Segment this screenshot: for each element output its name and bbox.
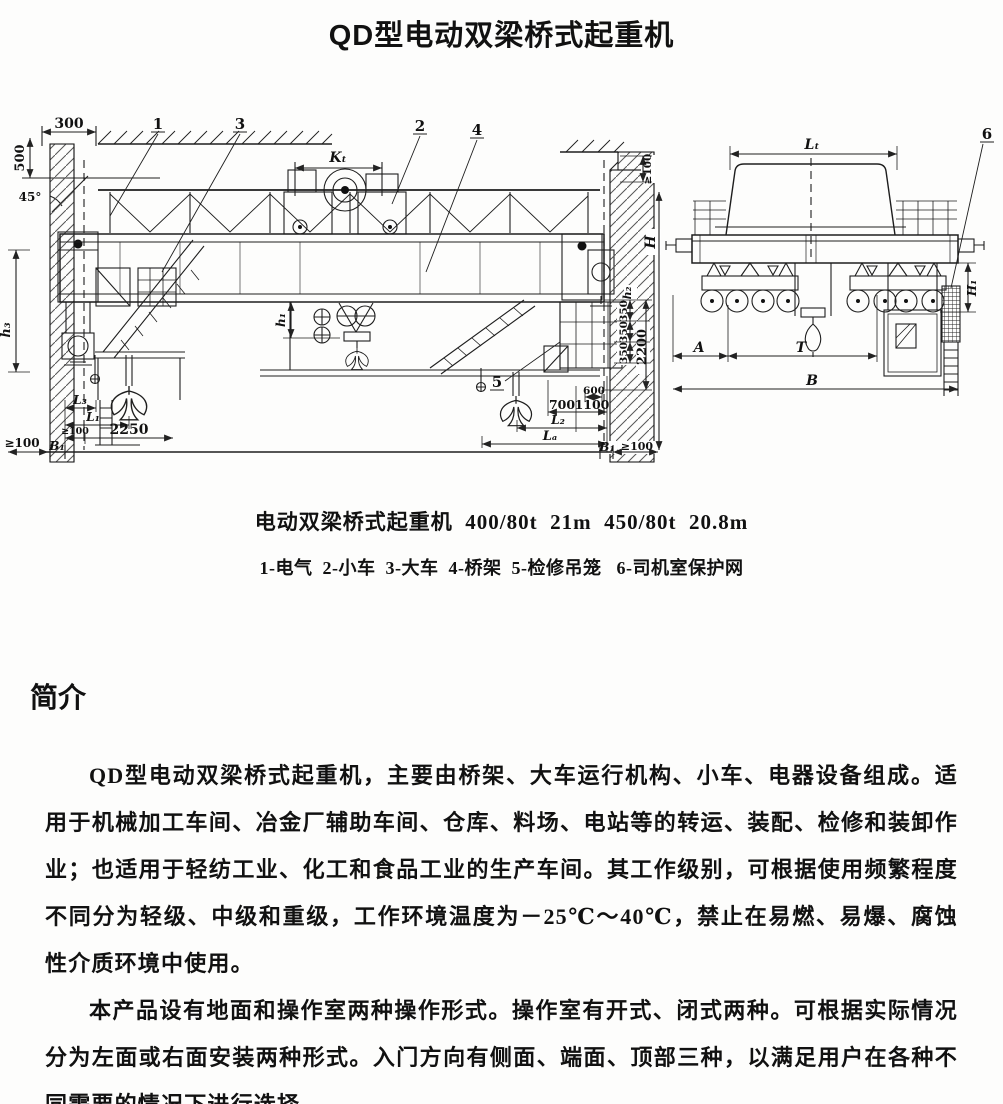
dim-label-H1: H₁ (965, 280, 979, 298)
dim-label-lt: Lₜ (803, 137, 819, 153)
callout-3: 3 (235, 115, 245, 133)
callout-4: 4 (472, 121, 482, 139)
page-title: QD型电动双梁桥式起重机 (0, 12, 1003, 54)
dim-label-L3: L₃ (72, 393, 87, 407)
dim-label-1100: 1100 (575, 397, 610, 412)
dim-label-B1-left: B₁ (48, 439, 64, 453)
dim-label-2200: 2200 (635, 329, 650, 365)
dim-label-h2: h₂ (621, 286, 634, 299)
dim-label-LA: Lₐ (542, 429, 557, 444)
dim-label-L2: L₂ (550, 413, 565, 427)
dim-label-geq100-bottom-left: ≥100 (61, 426, 89, 437)
dim-label-geq100-left: ≥100 (4, 436, 39, 450)
dim-label-350-2: 350 (618, 321, 630, 343)
dim-label-700: 700 (549, 397, 575, 412)
figure-caption: 电动双梁桥式起重机 400/80t 21m 450/80t 20.8m (0, 506, 1003, 536)
dim-label-A: A (692, 340, 705, 356)
intro-paragraphs: QD型电动双梁桥式起重机，主要由桥架、大车运行机构、小车、电器设备组成。适用于机… (45, 752, 958, 1104)
dim-label-500: 500 (13, 144, 28, 171)
dim-label-geq100-bottom-right: ≥100 (621, 440, 654, 453)
dim-label-300: 300 (54, 116, 83, 132)
dim-label-B1-right: B₁ (598, 440, 614, 454)
intro-paragraph-1: QD型电动双梁桥式起重机，主要由桥架、大车运行机构、小车、电器设备组成。适用于机… (45, 752, 958, 987)
drawing-labels: 300 500 45° 1 3 2 4 5 6 Kₜ ≥100 H h₁ h₂ … (0, 115, 992, 454)
callout-5: 5 (492, 373, 502, 391)
dim-label-350-3: 350 (618, 342, 630, 364)
callout-1: 1 (153, 115, 163, 133)
document-page: QD型电动双梁桥式起重机 (0, 0, 1003, 1104)
dim-label-L1: L₁ (85, 410, 100, 424)
dim-label-geq100-wall-top: ≥100 (642, 154, 654, 185)
dim-label-kt: Kₜ (328, 150, 346, 166)
callout-2: 2 (415, 117, 425, 135)
crane-technical-drawing: 300 500 45° 1 3 2 4 5 6 Kₜ ≥100 H h₁ h₂ … (0, 100, 1003, 480)
dim-label-350-1: 350 (618, 300, 630, 322)
dim-label-h1: h₁ (274, 313, 288, 327)
figure-legend: 1-电气 2-小车 3-大车 4-桥架 5-检修吊笼 6-司机室保护网 (0, 554, 1003, 580)
dim-label-T: T (796, 340, 808, 356)
side-view (666, 142, 994, 396)
intro-paragraph-2: 本产品设有地面和操作室两种操作形式。操作室有开式、闭式两种。可根据实际情况分为左… (45, 987, 958, 1104)
dim-label-h3: h₃ (0, 322, 14, 337)
dim-label-45deg: 45° (19, 190, 42, 204)
dim-label-2250: 2250 (110, 422, 149, 438)
dim-label-H: H (643, 235, 659, 250)
dim-label-B: B (805, 373, 818, 389)
callout-6: 6 (982, 125, 992, 143)
section-heading-intro: 简介 (30, 676, 86, 716)
dim-label-600: 600 (583, 385, 605, 397)
